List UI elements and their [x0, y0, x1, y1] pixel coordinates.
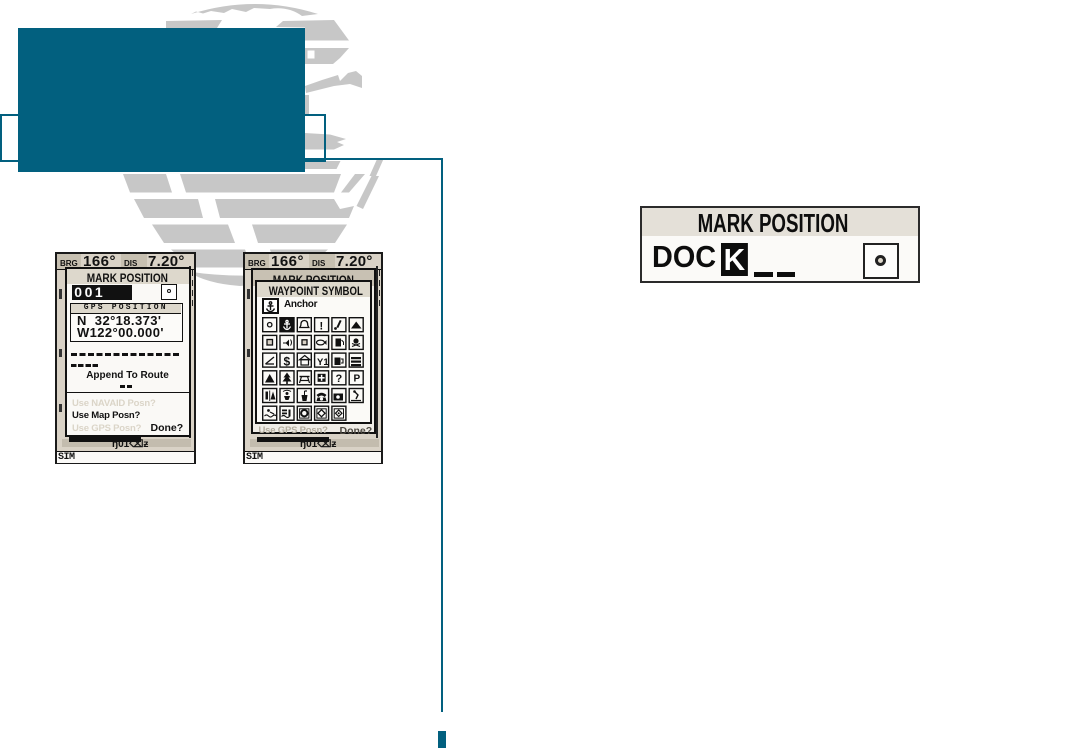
svg-text:Y1: Y1 — [317, 357, 329, 368]
svg-text:?: ? — [336, 373, 343, 385]
svg-text:$: $ — [284, 355, 291, 369]
svg-text:P: P — [354, 374, 361, 385]
svg-text:!: ! — [320, 321, 324, 333]
